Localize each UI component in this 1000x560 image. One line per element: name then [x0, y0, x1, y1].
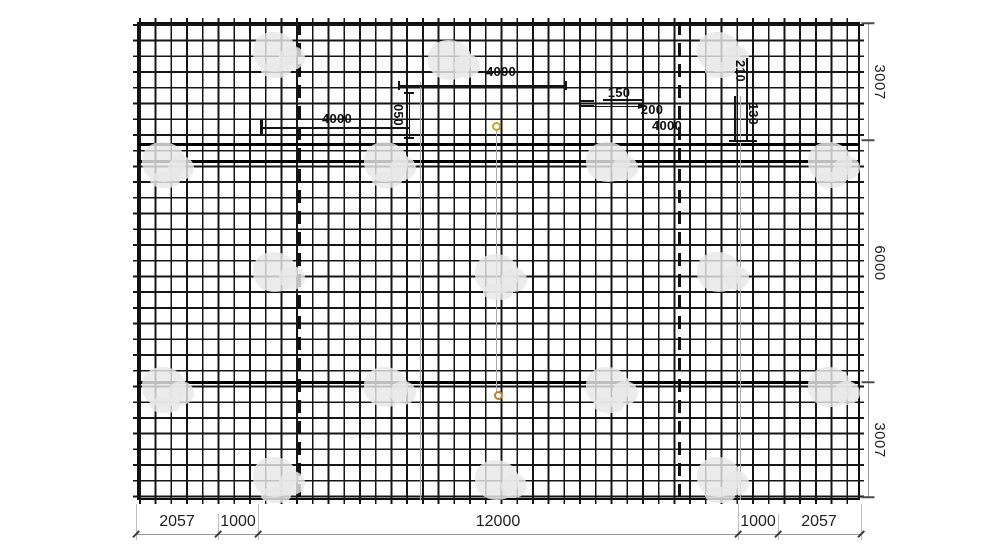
right-dim-tick	[862, 22, 875, 24]
circle-marker-bottom	[494, 391, 503, 400]
circle-marker-top	[492, 122, 501, 131]
right-dim-label-3007-top: 3007	[871, 64, 888, 99]
leader-break-bar	[581, 100, 594, 102]
heavy-line-top-division	[137, 143, 860, 146]
heavy-line-bottom-division	[137, 381, 860, 384]
dim-label-4000-leader: 4000	[652, 118, 682, 133]
bottom-dim-label-2057-right: 2057	[801, 513, 837, 531]
leader-break-bar	[581, 105, 594, 107]
dim-label-050: 050	[391, 104, 405, 126]
bottom-dim-label-1000-left: 1000	[220, 513, 256, 531]
dim-tick	[398, 81, 400, 90]
cad-drawing-canvas: 4000 4000 050 150 200 4000 210 130 3007 …	[0, 0, 1000, 560]
bottom-dim-label-2057-left: 2057	[159, 513, 195, 531]
dim-label-150: 150	[608, 85, 631, 100]
right-dim-tick	[862, 496, 875, 498]
mesh-grid	[137, 22, 860, 500]
dim-line-v050	[409, 92, 411, 139]
dashed-axis-line-right	[678, 22, 681, 500]
right-dim-label-3007-bottom: 3007	[871, 422, 888, 457]
extension-line-vertical	[420, 82, 421, 500]
dashed-axis-line-left	[298, 22, 301, 500]
dim-line-top-4000	[398, 85, 567, 87]
dim-tick	[565, 81, 567, 90]
dim-tick	[404, 92, 414, 94]
right-dim-label-6000: 6000	[871, 245, 888, 280]
dim-line-mid-4000	[262, 127, 410, 129]
dim-tick	[729, 140, 757, 142]
dim-label-210: 210	[733, 60, 747, 82]
bottom-ext-line	[778, 514, 779, 540]
extension-line-vertical	[496, 130, 497, 392]
dim-label-top-4000: 4000	[486, 64, 516, 79]
bottom-dim-line	[136, 534, 861, 535]
right-dim-line	[868, 22, 869, 498]
dim-tick	[404, 137, 414, 139]
dim-line-v130	[734, 96, 736, 142]
heavy-line-upper-band	[137, 160, 860, 163]
right-dim-tick	[862, 139, 875, 141]
dim-label-130: 130	[746, 103, 760, 125]
bottom-dim-label-12000: 12000	[476, 513, 521, 531]
leader-line	[594, 106, 644, 108]
bottom-dim-label-1000-right: 1000	[740, 513, 776, 531]
extension-line-vertical	[740, 96, 741, 500]
right-dim-tick	[862, 381, 875, 383]
dim-tick	[260, 119, 263, 136]
dim-label-200: 200	[641, 102, 664, 117]
bottom-ext-line	[218, 514, 219, 540]
dim-label-mid-4000: 4000	[322, 111, 352, 126]
